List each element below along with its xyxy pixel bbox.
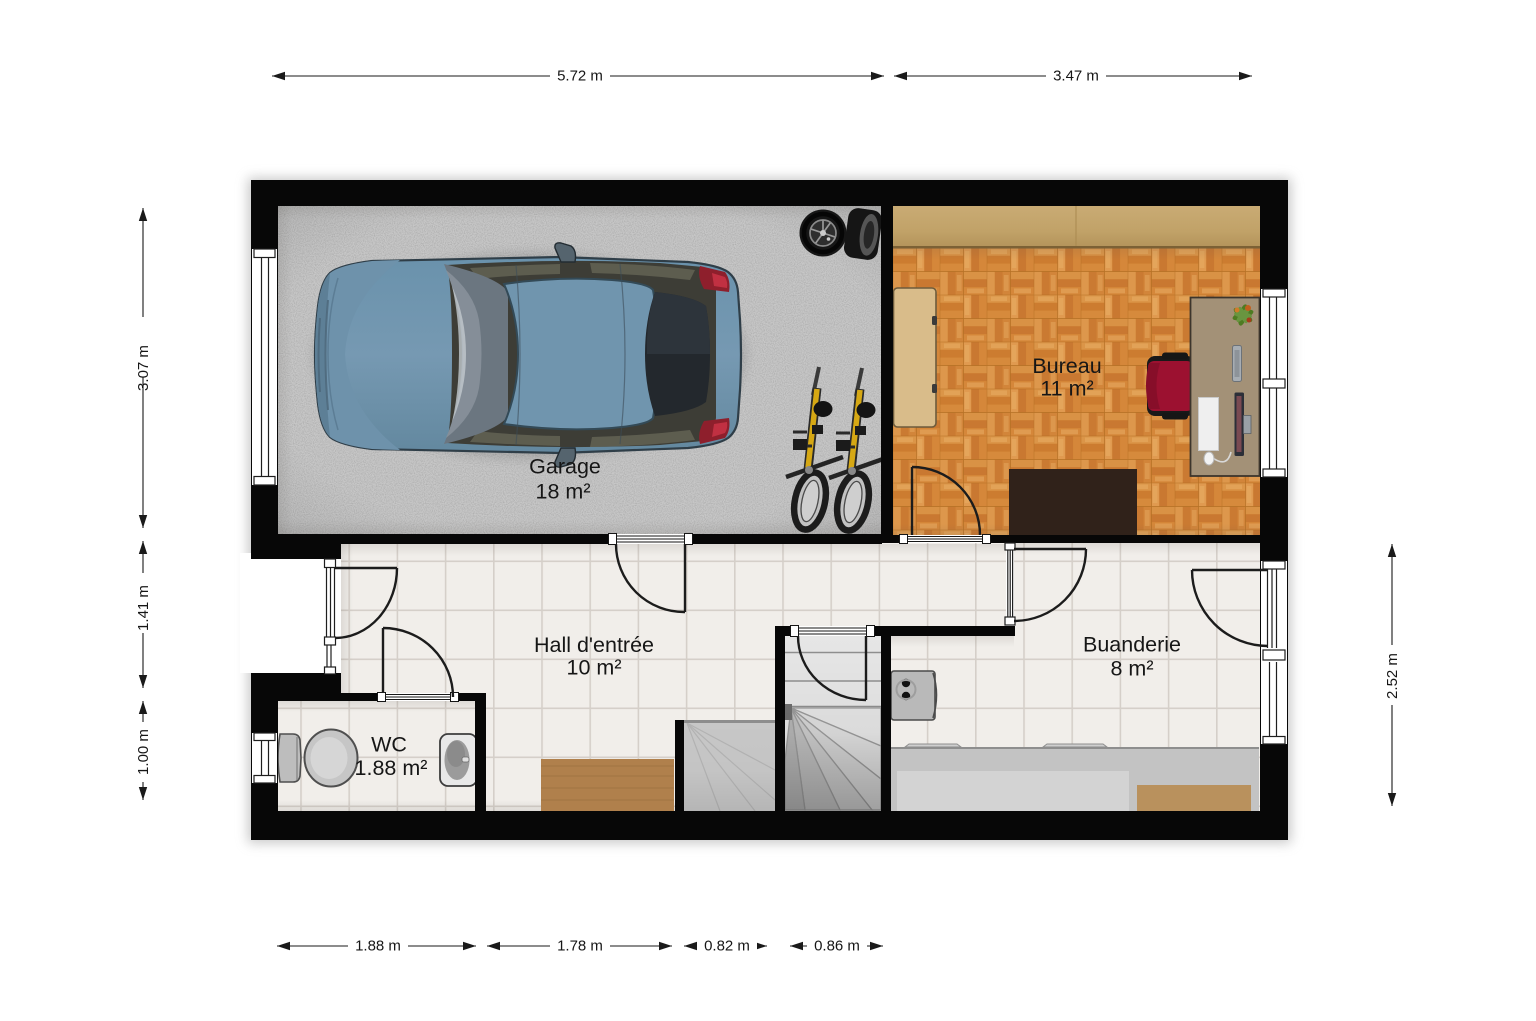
svg-text:0.86 m: 0.86 m xyxy=(814,938,860,955)
svg-text:3.47 m: 3.47 m xyxy=(1053,68,1099,85)
svg-text:1.88 m: 1.88 m xyxy=(355,938,401,955)
svg-text:1.88 m²: 1.88 m² xyxy=(355,756,428,780)
svg-text:11 m²: 11 m² xyxy=(1040,377,1093,401)
svg-text:0.82 m: 0.82 m xyxy=(704,938,750,955)
svg-text:Buanderie: Buanderie xyxy=(1083,633,1181,657)
svg-text:2.52 m: 2.52 m xyxy=(1384,653,1401,699)
svg-text:Bureau: Bureau xyxy=(1032,354,1101,378)
svg-text:8 m²: 8 m² xyxy=(1111,657,1154,681)
svg-text:1.41 m: 1.41 m xyxy=(135,585,152,631)
svg-text:Garage: Garage xyxy=(529,455,601,479)
svg-text:Hall d'entrée: Hall d'entrée xyxy=(534,633,654,657)
svg-text:1.78 m: 1.78 m xyxy=(557,938,603,955)
svg-text:WC: WC xyxy=(371,733,407,757)
svg-text:1.00 m: 1.00 m xyxy=(135,729,152,775)
svg-text:18 m²: 18 m² xyxy=(536,480,591,504)
svg-text:3.07 m: 3.07 m xyxy=(135,345,152,391)
svg-text:10 m²: 10 m² xyxy=(567,656,622,680)
svg-text:5.72 m: 5.72 m xyxy=(557,68,603,85)
